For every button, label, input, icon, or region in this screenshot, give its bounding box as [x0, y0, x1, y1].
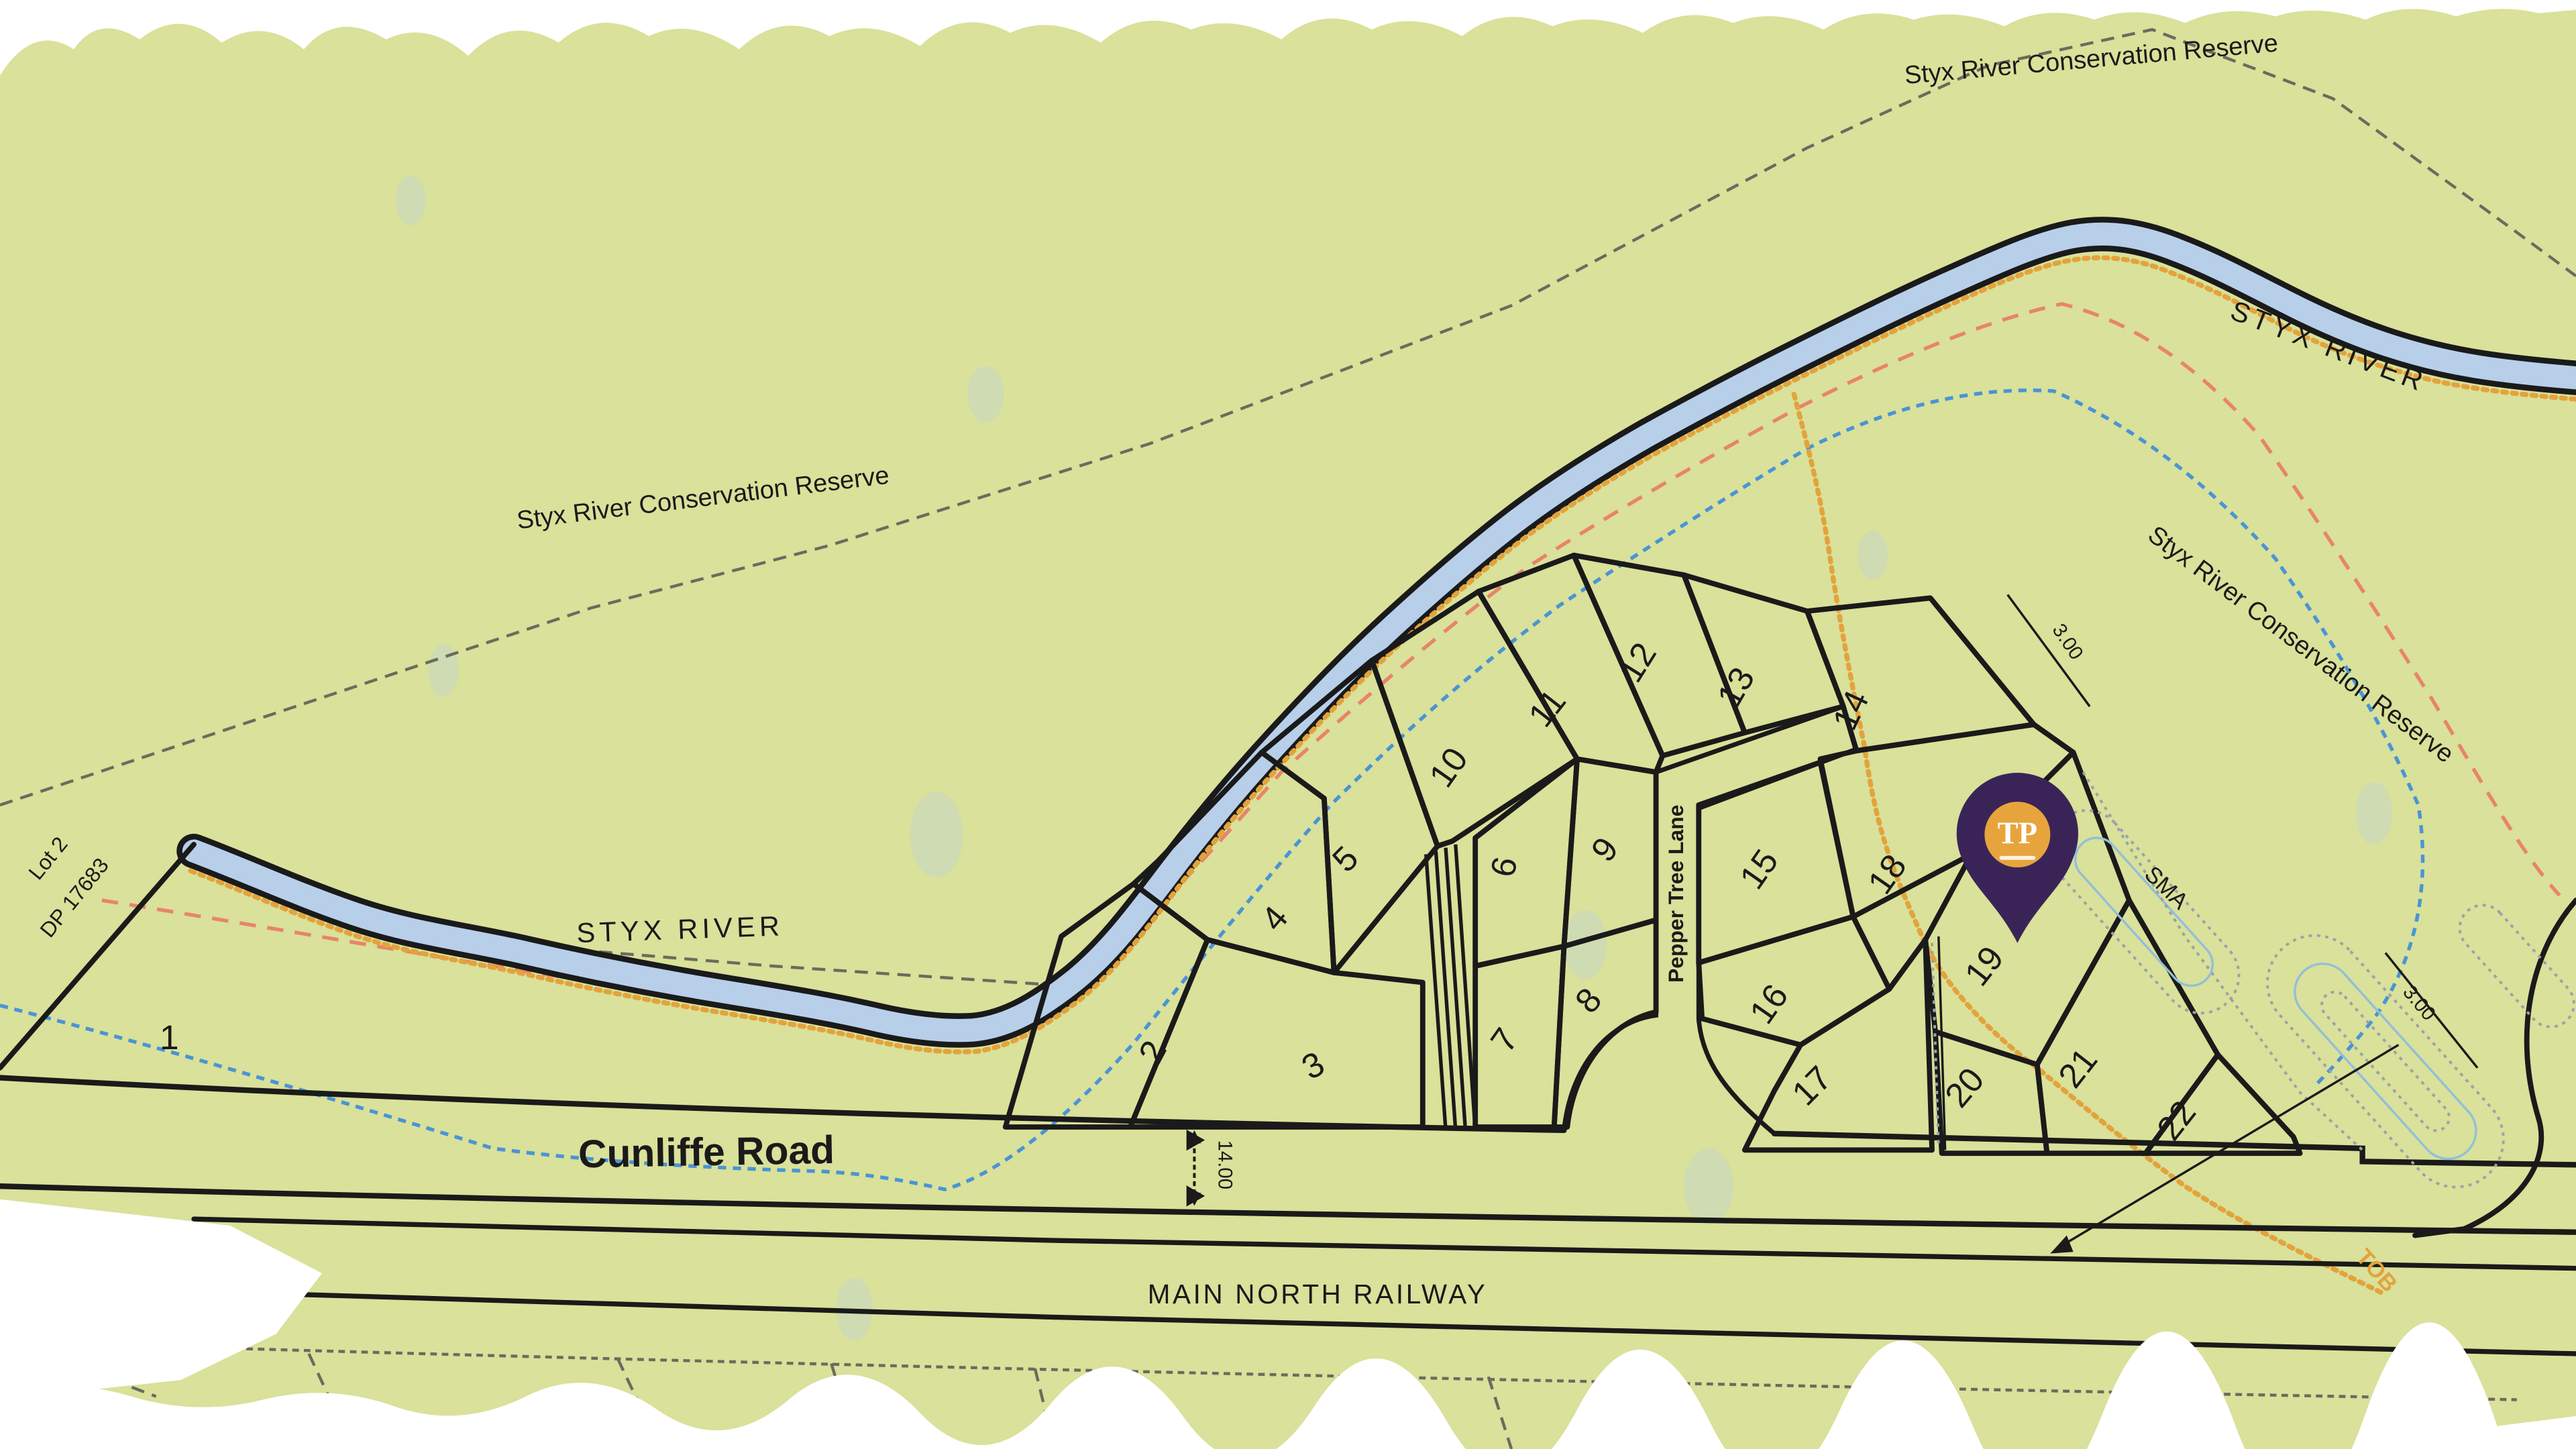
cunliffe-road-label: Cunliffe Road: [578, 1128, 835, 1177]
lot-1-number: 1: [160, 1018, 179, 1057]
main-north-railway-label: MAIN NORTH RAILWAY: [1148, 1279, 1488, 1309]
site-plan-map: Styx River Conservation ReserveStyx Rive…: [0, 0, 2576, 1449]
dim-14-label: 14.00: [1214, 1140, 1236, 1190]
pepper-tree-lane-label: Pepper Tree Lane: [1664, 805, 1688, 983]
pin-logo-text: TP: [1998, 816, 2037, 851]
pin-logo-tagline: [1999, 856, 2035, 860]
